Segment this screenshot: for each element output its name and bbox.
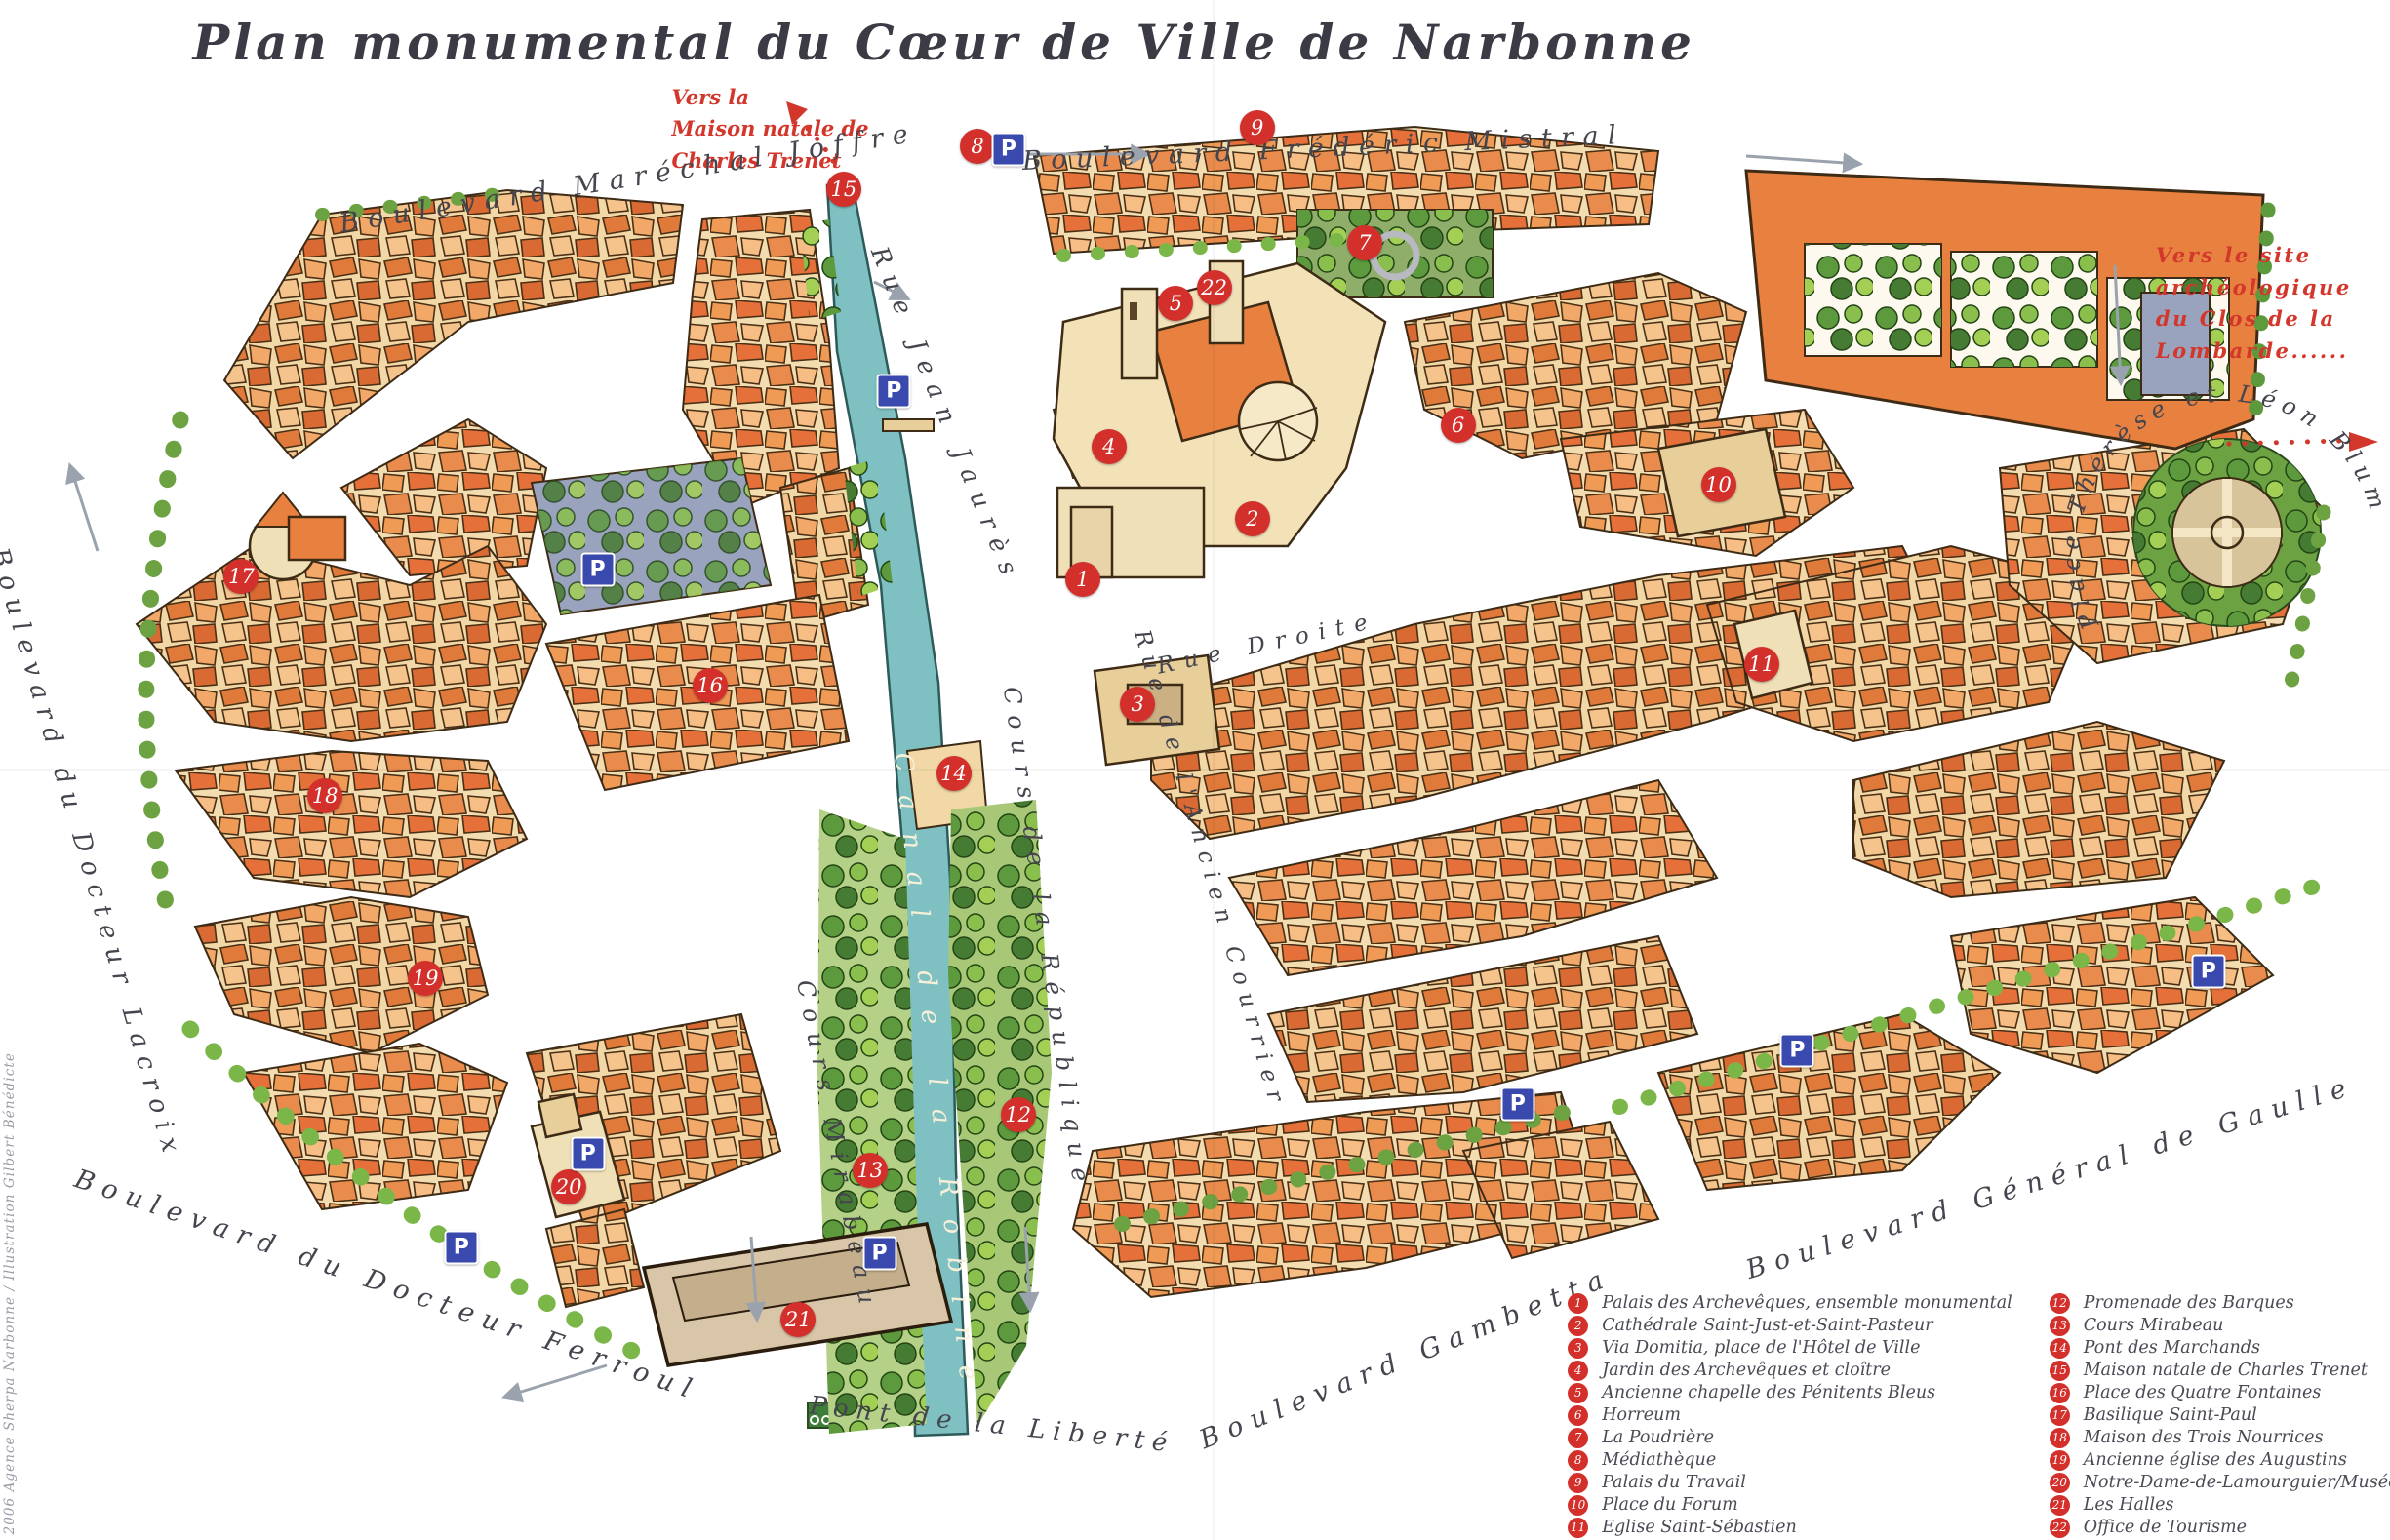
legend-column-left: 1Palais des Archevêques, ensemble monume… xyxy=(1568,1293,2012,1537)
legend-marker-icon: 5 xyxy=(1568,1383,1588,1403)
legend-marker-icon: 10 xyxy=(1568,1495,1588,1516)
legend-label: Place des Quatre Fontaines xyxy=(2084,1383,2322,1402)
annotation-line: Lombarde...... xyxy=(2156,336,2352,368)
legend-label: Via Domitia, place de l'Hôtel de Ville xyxy=(1602,1338,1920,1358)
annotation-line: Charles Trenet xyxy=(671,145,868,178)
legend-marker-icon: 11 xyxy=(1568,1518,1588,1538)
legend-item-16: 16Place des Quatre Fontaines xyxy=(2050,1383,2390,1402)
legend-item-7: 7La Poudrière xyxy=(1568,1428,2012,1447)
legend-marker-icon: 18 xyxy=(2050,1428,2070,1448)
legend-item-19: 19Ancienne église des Augustins xyxy=(2050,1450,2390,1470)
legend-label: Ancienne église des Augustins xyxy=(2084,1450,2347,1470)
legend-marker-icon: 17 xyxy=(2050,1405,2070,1426)
legend-label: Maison des Trois Nourrices xyxy=(2084,1428,2324,1447)
legend-label: Eglise Saint-Sébastien xyxy=(1602,1518,1797,1537)
legend-item-13: 13Cours Mirabeau xyxy=(2050,1316,2390,1335)
cathedral-saint-just xyxy=(1054,261,1385,577)
legend-marker-icon: 2 xyxy=(1568,1316,1588,1336)
annotation-maison-trenet: Vers la Maison natale de Charles Trenet xyxy=(671,82,868,178)
legend-label: Les Halles xyxy=(2084,1495,2174,1515)
annotation-line: Maison natale de xyxy=(671,113,868,145)
legend-item-21: 21Les Halles xyxy=(2050,1495,2390,1515)
legend-marker-icon: 4 xyxy=(1568,1361,1588,1381)
legend-label: Médiathèque xyxy=(1602,1450,1716,1470)
legend-item-10: 10Place du Forum xyxy=(1568,1495,2012,1515)
legend-label: Palais du Travail xyxy=(1602,1473,1746,1492)
legend-item-2: 2Cathédrale Saint-Just-et-Saint-Pasteur xyxy=(1568,1316,2012,1335)
legend-item-1: 1Palais des Archevêques, ensemble monume… xyxy=(1568,1293,2012,1313)
legend-item-3: 3Via Domitia, place de l'Hôtel de Ville xyxy=(1568,1338,2012,1358)
legend-item-22: 22Office de Tourisme xyxy=(2050,1518,2390,1537)
legend-marker-icon: 6 xyxy=(1568,1405,1588,1426)
legend-label: Cours Mirabeau xyxy=(2084,1316,2224,1335)
legend-item-11: 11Eglise Saint-Sébastien xyxy=(1568,1518,2012,1537)
legend-item-18: 18Maison des Trois Nourrices xyxy=(2050,1428,2390,1447)
annotation-line: Vers le site xyxy=(2156,240,2352,272)
legend-marker-icon: 3 xyxy=(1568,1338,1588,1359)
legend-label: Office de Tourisme xyxy=(2084,1518,2247,1537)
legend-label: Maison natale de Charles Trenet xyxy=(2084,1361,2368,1380)
legend-marker-icon: 15 xyxy=(2050,1361,2070,1381)
legend-label: Palais des Archevêques, ensemble monumen… xyxy=(1602,1293,2012,1313)
legend-marker-icon: 22 xyxy=(2050,1518,2070,1538)
legend-item-14: 14Pont des Marchands xyxy=(2050,1338,2390,1358)
legend-label: Basilique Saint-Paul xyxy=(2084,1405,2257,1425)
legend-item-20: 20Notre-Dame-de-Lamourguier/Musée lapida… xyxy=(2050,1473,2390,1492)
place-therese-leon-blum-park xyxy=(2133,439,2321,626)
legend-item-12: 12Promenade des Barques xyxy=(2050,1293,2390,1313)
parking-lot-nw xyxy=(532,458,771,614)
place-du-forum-square xyxy=(1658,429,1785,536)
legend-label: Cathédrale Saint-Just-et-Saint-Pasteur xyxy=(1602,1316,1932,1335)
legend-item-6: 6Horreum xyxy=(1568,1405,2012,1425)
legend-label: Ancienne chapelle des Pénitents Bleus xyxy=(1602,1383,1935,1402)
legend-item-4: 4Jardin des Archevêques et cloître xyxy=(1568,1361,2012,1380)
legend-marker-icon: 14 xyxy=(2050,1338,2070,1359)
legend-marker-icon: 12 xyxy=(2050,1293,2070,1314)
legend-marker-icon: 19 xyxy=(2050,1450,2070,1471)
credit-line: 2006 Agence Sherpa Narbonne / Illustrati… xyxy=(2,1052,18,1534)
legend-label: Notre-Dame-de-Lamourguier/Musée lapidair… xyxy=(2084,1473,2390,1492)
legend-label: Pont des Marchands xyxy=(2084,1338,2260,1358)
legend-item-17: 17Basilique Saint-Paul xyxy=(2050,1405,2390,1425)
legend-label: Horreum xyxy=(1602,1405,1681,1425)
legend-marker-icon: 21 xyxy=(2050,1495,2070,1516)
legend-marker-icon: 9 xyxy=(1568,1473,1588,1493)
annotation-line: archéologique xyxy=(2156,272,2352,304)
legend-marker-icon: 1 xyxy=(1568,1293,1588,1314)
annotation-line: du Clos de la xyxy=(2156,303,2352,336)
legend-marker-icon: 7 xyxy=(1568,1428,1588,1448)
legend-item-9: 9Palais du Travail xyxy=(1568,1473,2012,1492)
legend-marker-icon: 13 xyxy=(2050,1316,2070,1336)
legend-marker-icon: 16 xyxy=(2050,1383,2070,1403)
legend-marker-icon: 20 xyxy=(2050,1473,2070,1493)
legend-label: La Poudrière xyxy=(1602,1428,1714,1447)
legend-column-right: 12Promenade des Barques13Cours Mirabeau1… xyxy=(2050,1293,2390,1537)
annotation-line: Vers la xyxy=(671,82,868,114)
legend-item-15: 15Maison natale de Charles Trenet xyxy=(2050,1361,2390,1380)
map-title: Plan monumental du Cœur de Ville de Narb… xyxy=(193,14,1695,71)
annotation-clos-lombarde: Vers le site archéologique du Clos de la… xyxy=(2156,240,2352,367)
legend: 1Palais des Archevêques, ensemble monume… xyxy=(1568,1293,2380,1537)
legend-item-8: 8Médiathèque xyxy=(1568,1450,2012,1470)
via-domitia-square xyxy=(1095,655,1219,765)
legend-label: Promenade des Barques xyxy=(2084,1293,2294,1313)
legend-label: Jardin des Archevêques et cloître xyxy=(1602,1361,1891,1380)
legend-label: Place du Forum xyxy=(1602,1495,1738,1515)
legend-marker-icon: 8 xyxy=(1568,1450,1588,1471)
legend-item-5: 5Ancienne chapelle des Pénitents Bleus xyxy=(1568,1383,2012,1402)
